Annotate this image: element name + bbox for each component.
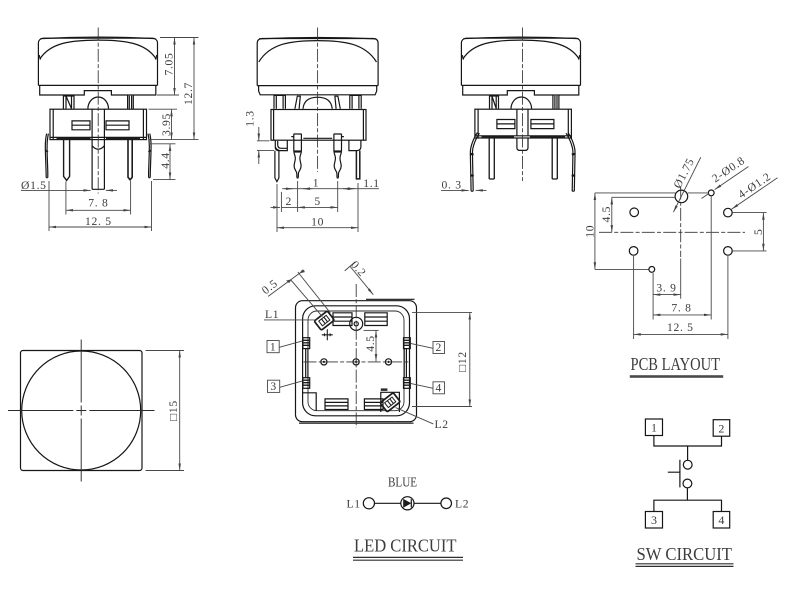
svg-text:L1: L1	[265, 308, 279, 321]
svg-text:3: 3	[270, 380, 277, 393]
svg-text:7. 8: 7. 8	[88, 196, 108, 209]
svg-text:□12: □12	[456, 351, 469, 372]
svg-text:4: 4	[435, 382, 442, 395]
svg-text:LED CIRCUIT: LED CIRCUIT	[354, 536, 457, 556]
svg-text:4.5: 4.5	[600, 206, 613, 223]
svg-text:0. 3: 0. 3	[442, 179, 462, 192]
svg-text:7. 8: 7. 8	[671, 302, 691, 315]
svg-text:1: 1	[270, 340, 277, 353]
svg-text:□15: □15	[167, 400, 180, 421]
svg-text:2: 2	[435, 341, 442, 354]
svg-text:1: 1	[313, 177, 320, 190]
svg-text:12.7: 12.7	[182, 82, 195, 105]
svg-text:2: 2	[718, 421, 724, 435]
svg-text:12. 5: 12. 5	[85, 215, 112, 228]
svg-text:PCB LAYOUT: PCB LAYOUT	[631, 354, 721, 374]
svg-text:1.1: 1.1	[363, 177, 380, 190]
svg-text:4.4: 4.4	[159, 152, 172, 169]
svg-text:1: 1	[651, 421, 657, 435]
svg-text:2: 2	[285, 195, 292, 208]
svg-text:12. 5: 12. 5	[667, 321, 694, 334]
svg-text:3: 3	[651, 513, 657, 527]
svg-text:SW CIRCUIT: SW CIRCUIT	[637, 544, 733, 564]
svg-text:7.05: 7.05	[163, 52, 176, 75]
svg-text:10: 10	[583, 225, 596, 238]
svg-text:L2: L2	[435, 418, 449, 431]
svg-text:3. 9: 3. 9	[656, 281, 676, 294]
svg-text:1.3: 1.3	[244, 110, 257, 127]
svg-text:4: 4	[718, 513, 724, 527]
svg-text:5: 5	[752, 229, 765, 236]
svg-text:L2: L2	[455, 498, 469, 511]
svg-text:L1: L1	[347, 498, 361, 511]
svg-text:10: 10	[311, 216, 324, 229]
svg-text:BLUE: BLUE	[388, 475, 417, 490]
svg-text:3.95: 3.95	[160, 113, 173, 136]
svg-text:4.5: 4.5	[364, 335, 377, 352]
svg-text:5: 5	[314, 195, 321, 208]
